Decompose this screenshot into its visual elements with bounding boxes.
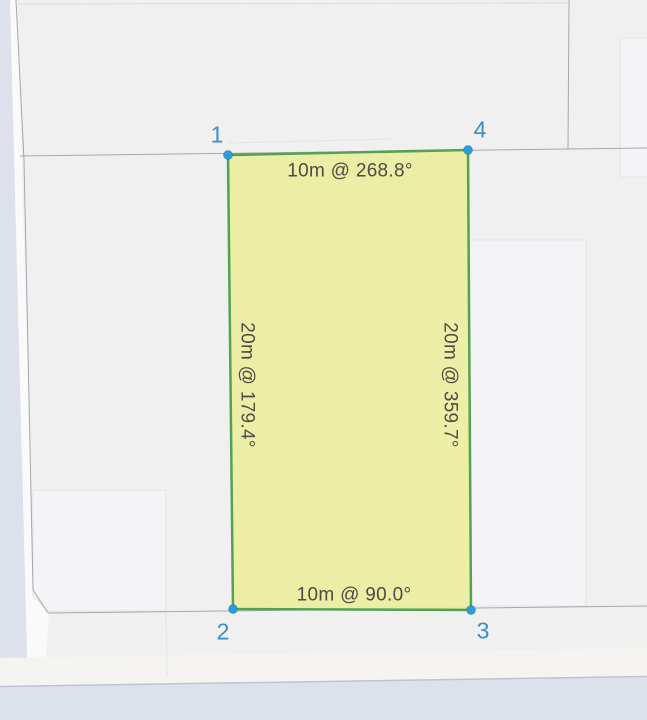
map-canvas[interactable]: 1 2 3 4 10m @ 268.8° 20m @ 359.7° 10m @ …: [0, 0, 647, 720]
vertex-handle-1[interactable]: [224, 151, 233, 160]
parcel-layer: [0, 0, 647, 720]
edge-label-left: 20m @ 179.4°: [238, 322, 257, 448]
vertex-label-1: 1: [211, 124, 224, 147]
vertex-handle-4[interactable]: [464, 146, 473, 155]
edge-label-bottom: 10m @ 90.0°: [297, 586, 412, 605]
vertex-label-3: 3: [477, 620, 490, 643]
edge-label-top: 10m @ 268.8°: [287, 162, 413, 181]
vertex-handle-2[interactable]: [229, 605, 238, 614]
edge-label-right: 20m @ 359.7°: [441, 322, 460, 448]
vertex-label-4: 4: [474, 119, 487, 142]
parcel-polygon[interactable]: [228, 150, 471, 610]
vertex-handle-3[interactable]: [467, 606, 476, 615]
vertex-label-2: 2: [217, 621, 230, 644]
